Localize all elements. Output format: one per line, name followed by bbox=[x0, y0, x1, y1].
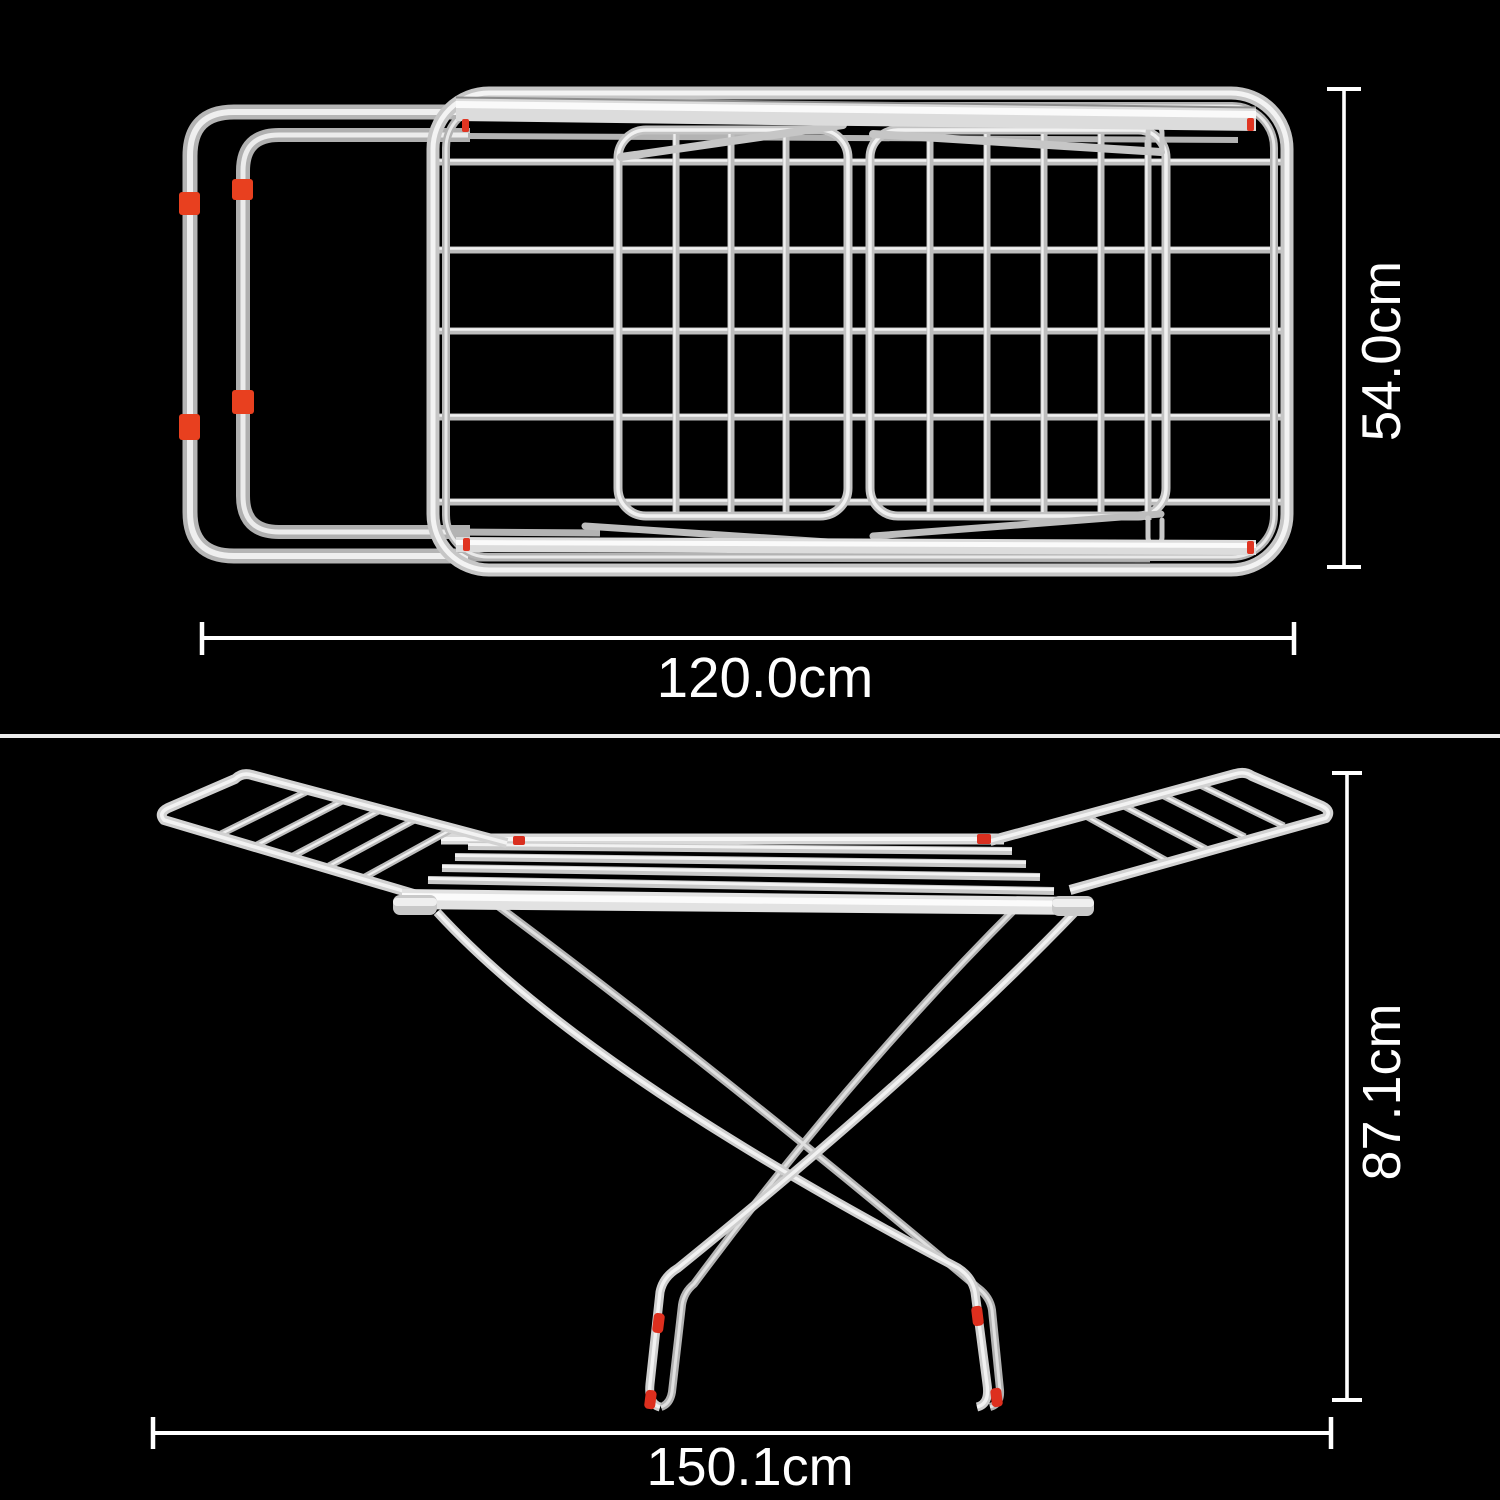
svg-text:120.0cm: 120.0cm bbox=[657, 646, 874, 709]
svg-text:87.1cm: 87.1cm bbox=[1352, 1003, 1412, 1180]
svg-text:54.0cm: 54.0cm bbox=[1350, 261, 1412, 441]
svg-text:150.1cm: 150.1cm bbox=[646, 1437, 853, 1497]
